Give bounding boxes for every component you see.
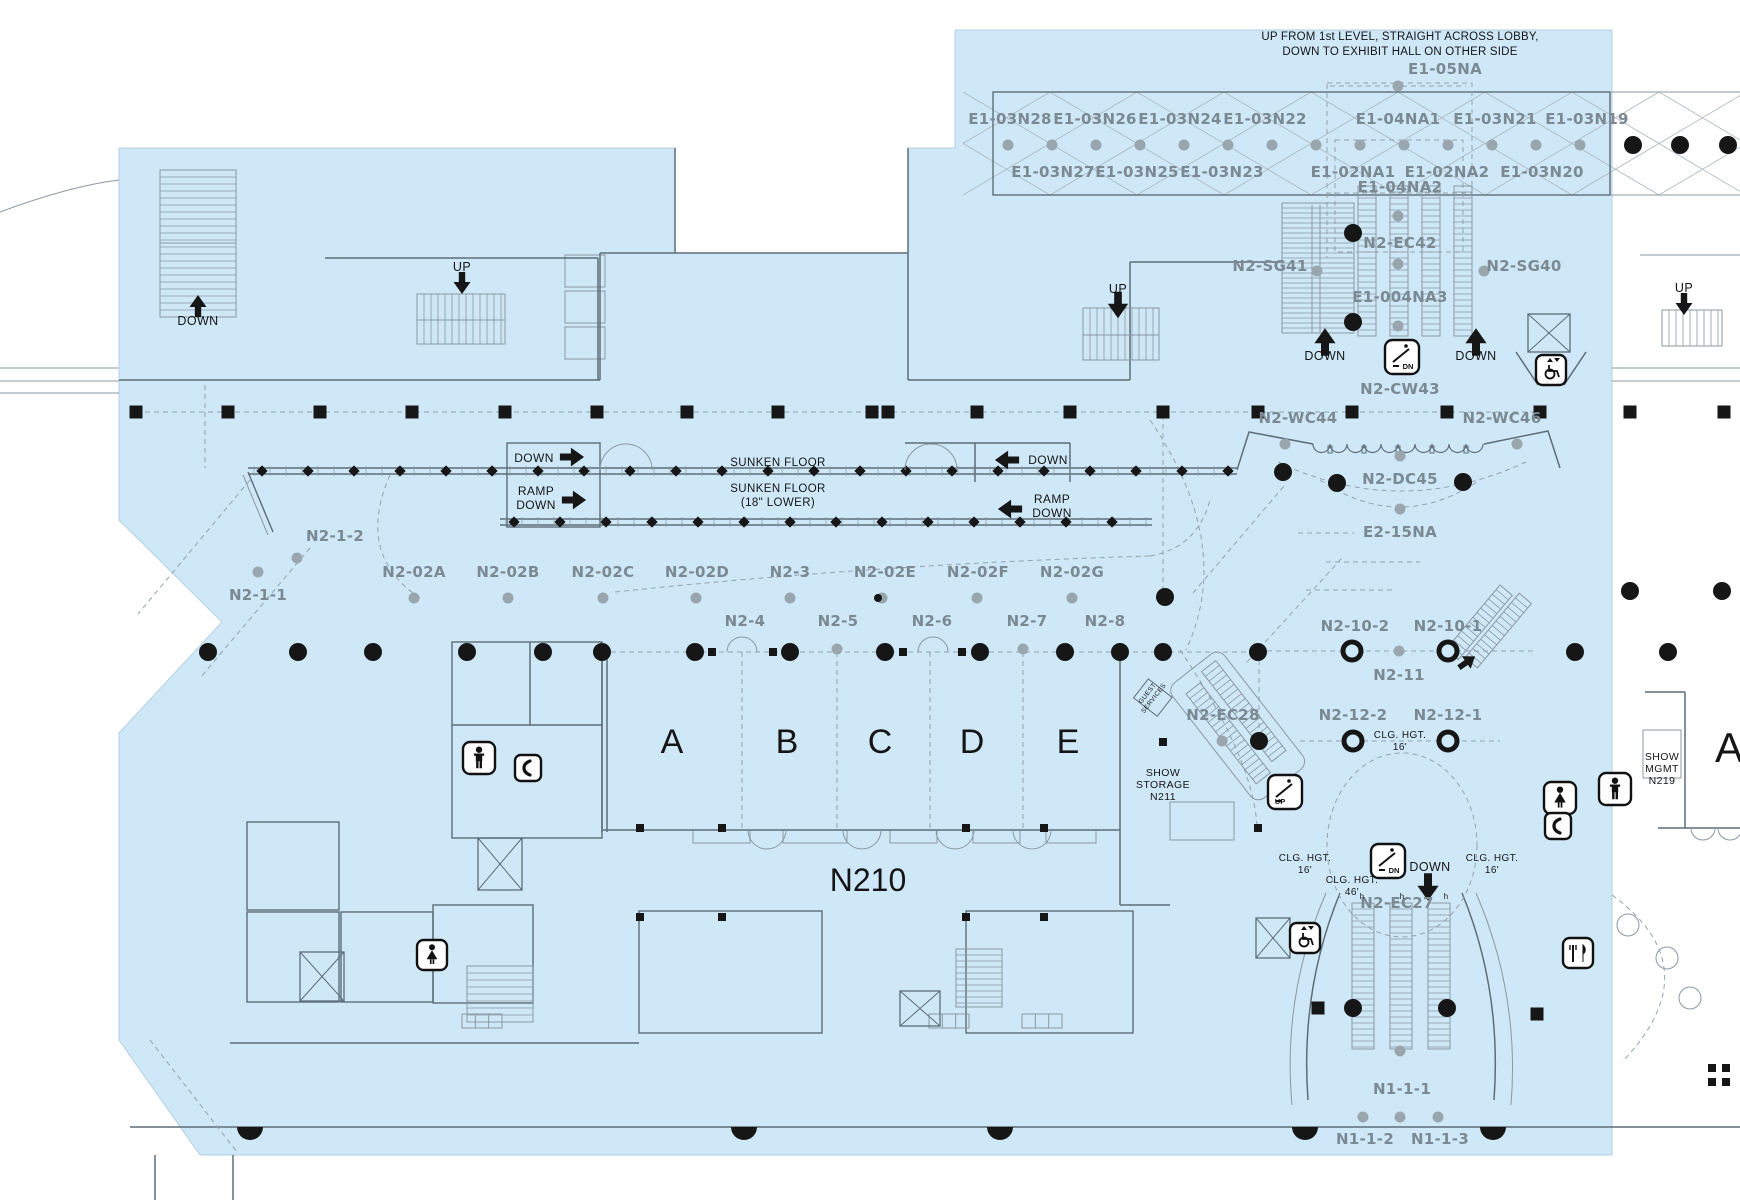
column-square-small xyxy=(718,913,726,921)
room-code-label: E1-03N22 xyxy=(1223,110,1307,128)
column-square-small xyxy=(1708,1078,1716,1086)
column-dot xyxy=(1154,643,1172,661)
esc-icon: DN xyxy=(1371,844,1405,878)
column-dot-gray xyxy=(785,593,796,604)
column-ring xyxy=(1439,642,1457,660)
lift-acc-icon xyxy=(1536,355,1566,385)
column-dot xyxy=(1344,313,1362,331)
person-leg xyxy=(1612,792,1614,800)
column-square-small xyxy=(769,648,777,656)
room-code-label: N2-EC42 xyxy=(1363,234,1436,252)
hall-letter-label: A xyxy=(1715,724,1740,771)
column-dot xyxy=(1713,582,1731,600)
wayfinding-label: CLG. HGT. xyxy=(1466,853,1519,864)
column-square xyxy=(1157,406,1170,419)
room-code-label: N2-8 xyxy=(1085,612,1126,630)
column-dot-gray xyxy=(598,593,609,604)
wayfinding-label: h xyxy=(1400,892,1405,901)
room-code-label: E1-03N20 xyxy=(1500,163,1584,181)
column-square xyxy=(882,406,895,419)
floor-plan-page: DNUPDNE1-05NAE1-03N28E1-03N26E1-03N24E1-… xyxy=(0,0,1740,1200)
column-dot xyxy=(1056,643,1074,661)
column-dot xyxy=(1454,473,1472,491)
column-dot-gray xyxy=(1358,1112,1369,1123)
wayfinding-label: 46' xyxy=(1345,887,1359,898)
column-dot xyxy=(534,643,552,661)
column-dot xyxy=(364,643,382,661)
column-square xyxy=(1064,406,1077,419)
room-code-label: N2-10-2 xyxy=(1321,617,1390,635)
room-code-label: N2-WC44 xyxy=(1258,409,1337,427)
wayfinding-label: STORAGE xyxy=(1136,779,1190,791)
person-leg xyxy=(480,761,482,769)
column-dot-gray xyxy=(1393,321,1404,332)
room-code-label: N2-12-1 xyxy=(1414,706,1483,724)
wayfinding-label: CLG. HGT. xyxy=(1374,730,1427,741)
column-dot-gray xyxy=(1135,140,1146,151)
wayfinding-label: UP xyxy=(1675,281,1693,295)
column-dot-gray xyxy=(1512,439,1523,450)
esc-icon: DN xyxy=(1385,340,1419,374)
column-dot xyxy=(1249,643,1267,661)
column-square xyxy=(130,406,143,419)
column-dot-gray xyxy=(1312,266,1323,277)
hall-letter-label: A xyxy=(661,723,684,761)
person-head xyxy=(429,944,435,950)
wayfinding-label: SHOW xyxy=(1645,751,1679,763)
wayfinding-label: MGMT xyxy=(1645,763,1679,775)
wayfinding-note-line2: DOWN TO EXHIBIT HALL ON OTHER SIDE xyxy=(1282,46,1517,58)
food-icon xyxy=(1563,938,1593,968)
person-leg xyxy=(433,959,435,964)
escalator-direction-label: DN xyxy=(1389,866,1400,875)
plan-generated-layer: DNUPDNE1-05NAE1-03N28E1-03N26E1-03N24E1-… xyxy=(0,0,1740,1200)
person-leg xyxy=(430,959,432,964)
room-code-label: N2-02G xyxy=(1040,563,1104,581)
column-dot xyxy=(1111,643,1129,661)
column-dot-gray xyxy=(691,593,702,604)
room-code-label: N2-5 xyxy=(818,612,859,630)
column-dot xyxy=(1250,732,1268,750)
wayfinding-label: DOWN xyxy=(1032,506,1072,520)
wayfinding-note-line1: UP FROM 1st LEVEL, STRAIGHT ACROSS LOBBY… xyxy=(1261,31,1538,43)
column-square xyxy=(1346,406,1359,419)
wayfinding-label: UP xyxy=(1109,282,1127,296)
wayfinding-label: SUNKEN FLOOR xyxy=(730,457,826,469)
column-dot-gray xyxy=(1393,211,1404,222)
hall-letter-label: D xyxy=(960,723,985,761)
column-dot-gray xyxy=(1393,81,1404,92)
column-dot-gray xyxy=(1395,1046,1406,1057)
room-code-label: E1-03N28 xyxy=(968,110,1052,128)
room-code-label: N2-11 xyxy=(1373,666,1425,684)
floor-plan-map: DNUPDNE1-05NAE1-03N28E1-03N26E1-03N24E1-… xyxy=(0,0,1740,1200)
person-body xyxy=(476,754,482,762)
person-leg xyxy=(1561,802,1563,807)
column-dot-gray xyxy=(1311,140,1322,151)
column-square xyxy=(681,406,694,419)
room-code-label: E1-03N19 xyxy=(1545,110,1629,128)
column-square-small xyxy=(708,648,716,656)
wayfinding-label: DOWN xyxy=(177,314,218,328)
column-square-small xyxy=(718,824,726,832)
column-square xyxy=(971,406,984,419)
column-dot-gray xyxy=(1394,646,1405,657)
wc-men-icon xyxy=(463,742,495,774)
column-dot-gray xyxy=(1531,140,1542,151)
phone-icon xyxy=(515,755,541,781)
wayfinding-label: CLG. HGT. xyxy=(1279,853,1332,864)
column-ring xyxy=(1343,642,1361,660)
person-leg xyxy=(476,761,478,769)
column-square xyxy=(1312,1002,1325,1015)
column-square-small xyxy=(1159,738,1167,746)
wayfinding-label: DOWN xyxy=(1304,349,1345,363)
column-dot-gray xyxy=(1267,140,1278,151)
room-code-label: N2-4 xyxy=(725,612,766,630)
column-dot xyxy=(1438,999,1456,1017)
column-square xyxy=(222,406,235,419)
wayfinding-label: 16' xyxy=(1298,865,1312,876)
room-code-label: N2-DC45 xyxy=(1362,470,1438,488)
escalator-person xyxy=(1287,779,1291,783)
esc-icon: UP xyxy=(1268,775,1302,809)
wayfinding-label: DOWN xyxy=(1455,349,1496,363)
room-code-label: N1-1-1 xyxy=(1373,1080,1431,1098)
column-square-small xyxy=(962,824,970,832)
column-dot-gray xyxy=(1395,504,1406,515)
lift-acc-icon xyxy=(1290,923,1320,953)
room-code-label: N1-1-2 xyxy=(1336,1130,1394,1148)
room-code-label: E1-03N24 xyxy=(1138,110,1222,128)
wayfinding-label: (18" LOWER) xyxy=(741,497,815,509)
column-dot xyxy=(289,643,307,661)
wc-women-icon xyxy=(417,940,447,970)
column-square xyxy=(314,406,327,419)
room-code-label: N2-10-1 xyxy=(1414,617,1483,635)
column-square-small xyxy=(1722,1064,1730,1072)
wayfinding-label: UP xyxy=(453,260,471,274)
column-dot-gray xyxy=(1487,140,1498,151)
room-code-label: N2-3 xyxy=(770,563,811,581)
wayfinding-label: N211 xyxy=(1150,791,1176,803)
column-dot xyxy=(781,643,799,661)
column-square-small xyxy=(958,648,966,656)
room-code-label: N2-02E xyxy=(854,563,916,581)
room-code-label: N2-7 xyxy=(1007,612,1048,630)
column-square xyxy=(866,406,879,419)
column-dot xyxy=(1344,999,1362,1017)
column-dot-gray xyxy=(1018,644,1029,655)
column-square-small xyxy=(962,913,970,921)
column-square-small xyxy=(1254,824,1262,832)
column-square xyxy=(1531,1008,1544,1021)
wayfinding-label: DOWN xyxy=(516,498,556,512)
column-square-small xyxy=(1708,1064,1716,1072)
person-body xyxy=(1612,785,1618,793)
room-code-label: N2-1-1 xyxy=(229,586,287,604)
room-code-label: N2-02B xyxy=(476,563,539,581)
column-dot-gray xyxy=(1003,140,1014,151)
room-code-label: N2-1-2 xyxy=(306,527,364,545)
room-code-label: N2-02C xyxy=(572,563,635,581)
column-dot xyxy=(199,643,217,661)
column-square-small xyxy=(1040,913,1048,921)
column-dot xyxy=(1156,588,1174,606)
column-dot-gray xyxy=(253,567,264,578)
column-square xyxy=(591,406,604,419)
column-square-small xyxy=(1040,824,1048,832)
room-code-label: N2-6 xyxy=(912,612,953,630)
wayfinding-label: 16' xyxy=(1393,742,1407,753)
person-head xyxy=(1557,786,1563,792)
column-dot-gray xyxy=(1395,451,1406,462)
column-square-small xyxy=(1722,1078,1730,1086)
room-code-label: N2-EC28 xyxy=(1186,706,1259,724)
wayfinding-label: h xyxy=(1444,892,1449,901)
column-dot xyxy=(1671,136,1689,154)
column-dot xyxy=(971,643,989,661)
person-leg xyxy=(1558,802,1560,807)
wayfinding-label: N219 xyxy=(1649,775,1676,787)
room-code-label: E1-03N26 xyxy=(1053,110,1137,128)
room-code-label: N2-02F xyxy=(947,563,1009,581)
room-code-label: N1-1-3 xyxy=(1411,1130,1469,1148)
hall-letter-label: N210 xyxy=(830,862,907,898)
column-dot-gray xyxy=(1047,140,1058,151)
column-dot-gray xyxy=(1393,259,1404,270)
column-ring xyxy=(1439,732,1457,750)
column-dot-gray xyxy=(503,593,514,604)
column-square xyxy=(406,406,419,419)
column-square xyxy=(772,406,785,419)
room-code-label: N2-02D xyxy=(665,563,729,581)
room-code-label: N2-CW43 xyxy=(1360,380,1440,398)
column-dot-gray xyxy=(1217,736,1228,747)
room-code-label: E2-15NA xyxy=(1363,523,1437,541)
column-dot-gray xyxy=(1223,140,1234,151)
room-code-label: E1-03N25 xyxy=(1095,163,1179,181)
escalator-person xyxy=(1404,344,1408,348)
column-square-small xyxy=(899,648,907,656)
wayfinding-label: h xyxy=(1360,892,1365,901)
wayfinding-label: RAMP xyxy=(1034,492,1070,506)
column-square xyxy=(499,406,512,419)
room-code-label: E1-03N27 xyxy=(1011,163,1095,181)
column-square xyxy=(1441,406,1454,419)
column-dot-gray xyxy=(1280,439,1291,450)
column-dot xyxy=(876,643,894,661)
wayfinding-label: DOWN xyxy=(514,451,554,465)
phone-icon xyxy=(1545,813,1571,839)
wc-men-icon xyxy=(1599,773,1631,805)
column-dot-gray xyxy=(1091,140,1102,151)
escalator-direction-label: DN xyxy=(1403,362,1414,371)
room-code-label: E1-04NA1 xyxy=(1356,110,1441,128)
phone-icon xyxy=(1545,813,1571,839)
column-dot xyxy=(458,643,476,661)
hall-letter-label: C xyxy=(868,723,893,761)
column-dot-gray xyxy=(1067,593,1078,604)
column-dot-gray xyxy=(1179,140,1190,151)
phone-icon xyxy=(515,755,541,781)
wayfinding-label: CLG. HGT. xyxy=(1326,875,1379,886)
person-leg xyxy=(1616,792,1618,800)
column-dot-gray xyxy=(1399,140,1410,151)
room-code-label: N2-EC27 xyxy=(1360,894,1433,912)
column-dot-gray xyxy=(832,644,843,655)
column-dot xyxy=(593,643,611,661)
column-square-small xyxy=(636,913,644,921)
wayfinding-label: DOWN xyxy=(1409,860,1450,874)
column-dot xyxy=(1719,136,1737,154)
room-code-label: N2-WC46 xyxy=(1462,409,1541,427)
column-dot xyxy=(1328,474,1346,492)
column-square xyxy=(1718,406,1731,419)
wayfinding-label: DOWN xyxy=(1028,453,1068,467)
room-code-label: N2-12-2 xyxy=(1319,706,1388,724)
column-dot-gray xyxy=(1433,1112,1444,1123)
column-dot xyxy=(1624,136,1642,154)
escalator-direction-label: UP xyxy=(1275,797,1285,806)
column-dot xyxy=(1274,463,1292,481)
wayfinding-label: SUNKEN FLOOR xyxy=(730,483,826,495)
column-square-small xyxy=(636,824,644,832)
column-dot-gray xyxy=(1575,140,1586,151)
column-dot xyxy=(1344,224,1362,242)
escalator-person xyxy=(1390,848,1394,852)
hall-letter-label: B xyxy=(776,723,799,761)
column-dot-gray xyxy=(1443,140,1454,151)
column-dot xyxy=(1659,643,1677,661)
column-dot-gray xyxy=(972,593,983,604)
room-code-label: N2-SG40 xyxy=(1486,257,1561,275)
person-head xyxy=(1612,777,1618,783)
column-dot-gray xyxy=(292,553,303,564)
column-ring xyxy=(1344,732,1362,750)
column-dot xyxy=(686,643,704,661)
column-dot-small xyxy=(874,594,882,602)
column-square xyxy=(1624,406,1637,419)
food-icon xyxy=(1563,938,1593,968)
column-dot-gray xyxy=(1395,1112,1406,1123)
hall-letter-label: E xyxy=(1057,723,1080,761)
room-code-label: E1-004NA3 xyxy=(1352,288,1448,306)
room-code-label: N2-SG41 xyxy=(1232,257,1307,275)
wayfinding-label: 16' xyxy=(1485,865,1499,876)
room-code-label: N2-02A xyxy=(382,563,446,581)
room-code-label: E1-03N21 xyxy=(1453,110,1537,128)
column-dot-gray xyxy=(409,593,420,604)
room-code-label: E1-03N23 xyxy=(1180,163,1264,181)
wc-women-icon xyxy=(1544,782,1576,814)
wayfinding-label: RAMP xyxy=(518,484,554,498)
room-code-label: E1-04NA2 xyxy=(1358,178,1443,196)
room-code-label: E1-05NA xyxy=(1408,60,1482,78)
column-dot xyxy=(1566,643,1584,661)
column-dot xyxy=(1621,582,1639,600)
wayfinding-label: SHOW xyxy=(1146,767,1180,779)
person-head xyxy=(476,746,482,752)
column-dot-gray xyxy=(1355,140,1366,151)
